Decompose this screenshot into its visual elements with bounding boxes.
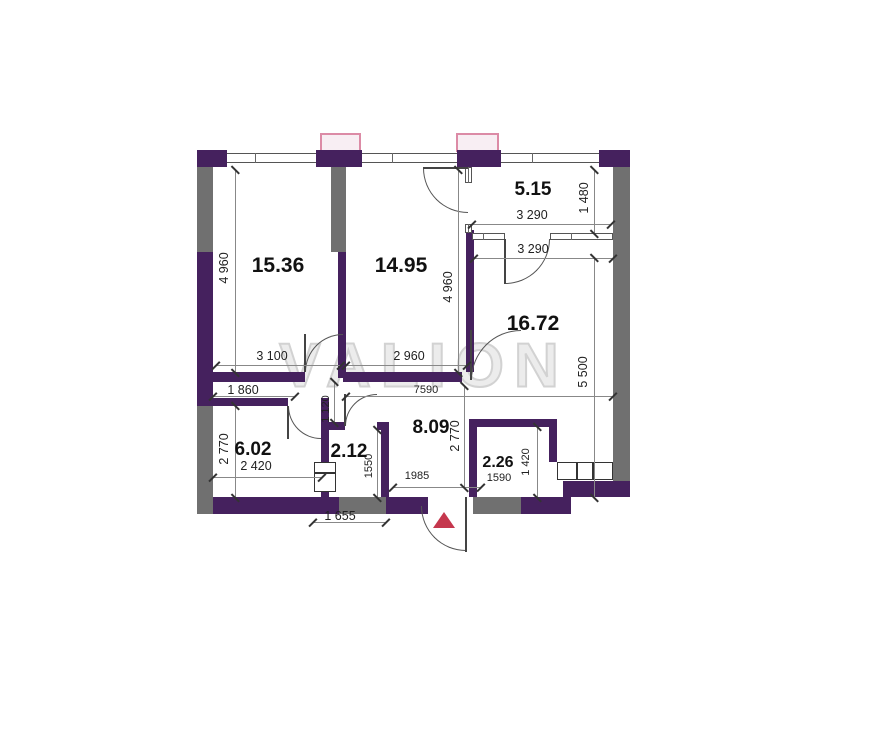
dim-text: 2 770 bbox=[217, 433, 231, 464]
dim-line bbox=[474, 258, 612, 259]
wall-segment bbox=[213, 497, 339, 514]
dim-text: 3 290 bbox=[516, 208, 547, 222]
dim-text: 1985 bbox=[405, 470, 429, 482]
wall-segment bbox=[197, 167, 213, 252]
wall-segment bbox=[213, 372, 305, 382]
dim-line bbox=[537, 427, 538, 497]
room-label-5-15: 5.15 bbox=[515, 179, 552, 201]
wall-segment bbox=[521, 497, 571, 514]
dim-text: 1 120 bbox=[320, 395, 332, 423]
dim-line bbox=[594, 258, 595, 497]
dim-line bbox=[346, 365, 466, 366]
dim-text: 5 500 bbox=[576, 356, 590, 387]
window bbox=[499, 153, 601, 163]
dim-line bbox=[472, 224, 610, 225]
dim-line bbox=[377, 430, 378, 497]
door-leaf bbox=[304, 334, 306, 372]
wall-segment bbox=[316, 150, 362, 167]
wall-segment bbox=[213, 398, 288, 406]
wall-segment bbox=[381, 422, 389, 497]
floor-plan: VALION bbox=[0, 0, 876, 742]
dim-line bbox=[458, 170, 459, 372]
dim-text: 1 480 bbox=[577, 182, 591, 213]
wall-segment bbox=[469, 419, 477, 497]
dim-text: 2 770 bbox=[448, 420, 462, 451]
dim-text: 7590 bbox=[414, 384, 438, 396]
room-label-8-09: 8.09 bbox=[413, 417, 450, 439]
dim-line bbox=[464, 386, 465, 487]
room-label-16-72: 16.72 bbox=[507, 312, 560, 336]
room-label-2-12: 2.12 bbox=[331, 441, 368, 463]
window bbox=[225, 153, 318, 163]
door-leaf bbox=[287, 406, 289, 439]
door-leaf bbox=[504, 239, 506, 284]
entrance-door-leaf bbox=[465, 497, 467, 552]
dim-text: 1 655 bbox=[324, 509, 355, 523]
window bbox=[360, 153, 459, 163]
dim-line bbox=[393, 487, 480, 488]
dim-text: 4 960 bbox=[441, 271, 455, 302]
room-label-6-02: 6.02 bbox=[235, 439, 272, 461]
wall-segment bbox=[343, 372, 462, 382]
wall-segment bbox=[563, 481, 630, 497]
dim-text: 3 290 bbox=[517, 242, 548, 256]
dim-line bbox=[213, 477, 321, 478]
door-arc bbox=[423, 168, 468, 213]
window bbox=[557, 462, 613, 480]
wall-segment bbox=[469, 419, 557, 427]
wall-segment bbox=[331, 167, 346, 252]
room-label-14-95: 14.95 bbox=[375, 254, 428, 278]
door-arc bbox=[288, 406, 321, 439]
wall-segment bbox=[473, 497, 521, 514]
dim-text: 1 420 bbox=[520, 448, 532, 476]
wall-segment bbox=[613, 167, 630, 481]
entrance-arrow bbox=[433, 512, 455, 528]
wall-segment bbox=[197, 150, 227, 167]
dim-line bbox=[216, 365, 340, 366]
dim-text: 2 420 bbox=[240, 459, 271, 473]
room-label-15-36: 15.36 bbox=[252, 254, 305, 278]
wall-segment bbox=[549, 419, 557, 462]
door-leaf bbox=[423, 167, 468, 169]
wall-segment bbox=[599, 150, 630, 167]
dim-line bbox=[594, 170, 595, 233]
dim-text: 1590 bbox=[487, 472, 511, 484]
wall-segment bbox=[197, 252, 213, 406]
dim-text: 4 960 bbox=[217, 252, 231, 283]
window bbox=[472, 233, 505, 240]
wall-segment bbox=[197, 406, 213, 514]
room-label-2-26: 2.26 bbox=[482, 454, 513, 472]
dim-text: 3 100 bbox=[256, 349, 287, 363]
door-leaf bbox=[470, 330, 472, 380]
dim-text: 2 960 bbox=[393, 349, 424, 363]
dim-text: 1 860 bbox=[227, 383, 258, 397]
window bbox=[550, 233, 613, 240]
wall-segment bbox=[457, 150, 501, 167]
dim-line bbox=[346, 396, 612, 397]
dim-line bbox=[235, 170, 236, 372]
window-mullion bbox=[576, 463, 578, 479]
dim-line bbox=[334, 382, 335, 422]
